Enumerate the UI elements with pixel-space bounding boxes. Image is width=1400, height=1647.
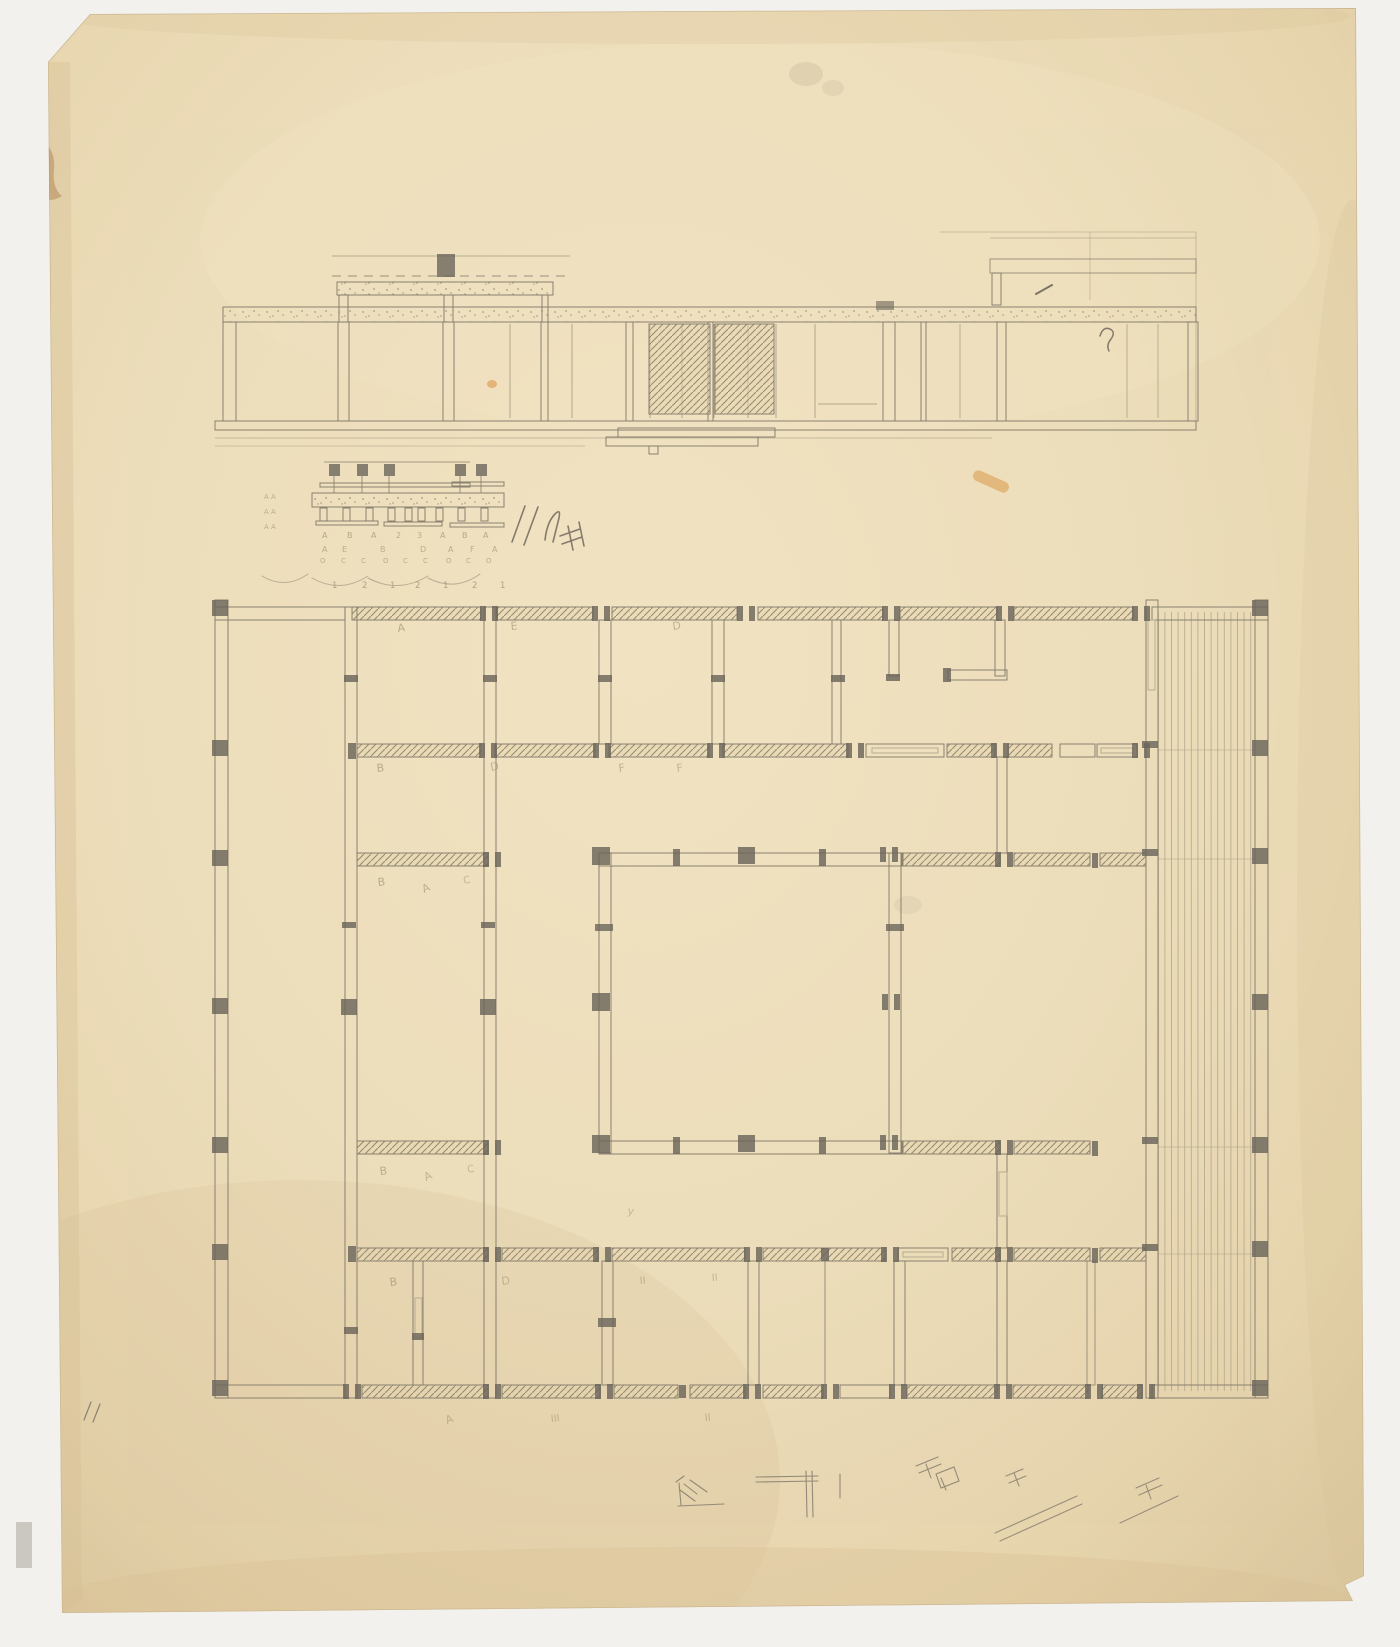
svg-text:A: A — [371, 531, 377, 540]
svg-text:A: A — [440, 531, 446, 540]
svg-text:O: O — [486, 557, 492, 565]
svg-text:E: E — [510, 619, 518, 633]
svg-text:F: F — [470, 545, 475, 554]
svg-text:D: D — [420, 545, 426, 554]
svg-text:II: II — [711, 1273, 718, 1284]
svg-text:2: 2 — [396, 531, 401, 540]
svg-text:1: 1 — [500, 581, 505, 591]
svg-text:D: D — [501, 1274, 511, 1288]
svg-text:C: C — [423, 557, 428, 565]
svg-text:B: B — [380, 545, 386, 554]
svg-text:1: 1 — [443, 581, 448, 591]
svg-text:B: B — [389, 1275, 398, 1289]
svg-text:II: II — [704, 1413, 711, 1424]
svg-text:II: II — [639, 1276, 646, 1287]
svg-text:A: A — [483, 531, 489, 540]
scanned-architectural-drawing: A AA AA AABA23ABAAEBDAFAOCCOCCOCO1212121… — [0, 0, 1400, 1647]
svg-text:B: B — [462, 531, 468, 540]
svg-text:C: C — [403, 557, 408, 565]
scan-background-patch — [16, 1522, 32, 1568]
svg-text:C: C — [341, 557, 346, 565]
svg-text:E: E — [342, 545, 347, 554]
svg-text:1: 1 — [390, 581, 395, 591]
svg-text:O: O — [446, 557, 452, 565]
drawing-canvas: A AA AA AABA23ABAAEBDAFAOCCOCCOCO1212121… — [0, 0, 1400, 1647]
svg-text:A A: A A — [264, 493, 276, 501]
svg-text:D: D — [672, 619, 682, 633]
svg-text:A A: A A — [264, 508, 276, 516]
svg-text:A: A — [322, 531, 328, 540]
svg-text:A: A — [322, 545, 328, 554]
svg-text:A A: A A — [264, 523, 276, 531]
svg-text:O: O — [383, 557, 389, 565]
svg-text:O: O — [320, 557, 326, 565]
svg-text:3: 3 — [417, 531, 422, 540]
svg-text:C: C — [361, 557, 366, 565]
svg-text:C: C — [466, 557, 471, 565]
svg-text:2: 2 — [362, 581, 367, 591]
svg-text:1: 1 — [332, 581, 337, 591]
svg-text:2: 2 — [472, 581, 477, 591]
svg-text:B: B — [347, 531, 353, 540]
svg-text:2: 2 — [415, 581, 420, 591]
svg-text:B: B — [376, 761, 385, 775]
svg-text:A: A — [448, 545, 454, 554]
svg-text:A: A — [492, 545, 498, 554]
svg-text:B: B — [379, 1164, 388, 1178]
svg-text:B: B — [377, 875, 386, 889]
svg-text:III: III — [550, 1413, 560, 1425]
